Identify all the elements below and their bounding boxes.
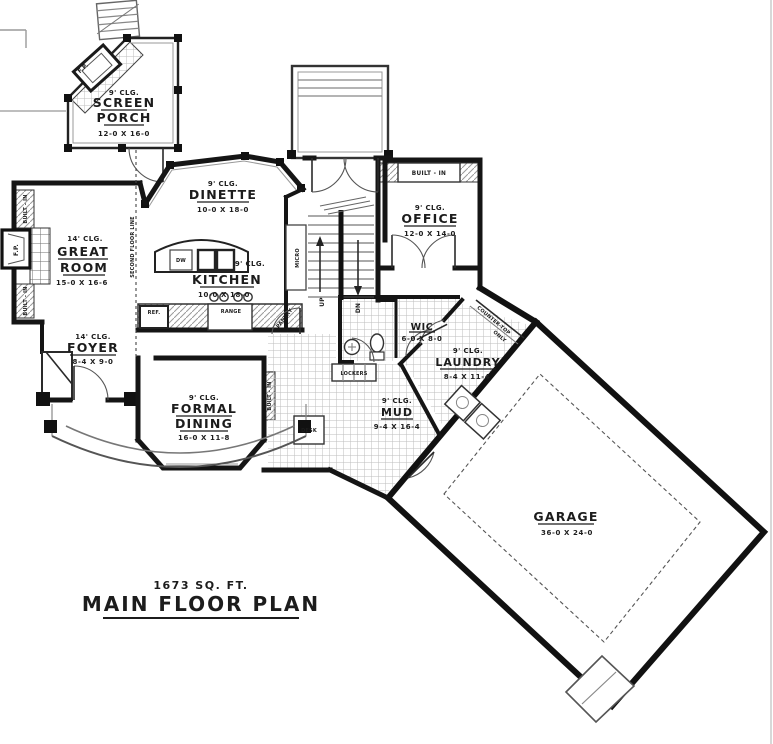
svg-text:KITCHEN: KITCHEN — [192, 272, 262, 287]
plan-title: MAIN FLOOR PLAN — [82, 592, 320, 616]
svg-text:10-0 X 18-0: 10-0 X 18-0 — [198, 291, 250, 299]
porch-door-arc — [129, 148, 163, 182]
range-cabinet — [208, 304, 252, 330]
svg-text:36-0 X 24-0: 36-0 X 24-0 — [541, 529, 593, 537]
stair-rail-hatch — [320, 197, 374, 214]
title-block: 1673 SQ. FT. MAIN FLOOR PLAN — [82, 579, 320, 618]
built-in-label-dining: BUILT - IN — [267, 381, 273, 410]
dinette-label: 9' CLG. DINETTE 10-0 X 18-0 — [189, 180, 257, 214]
great-room-fireplace-label: F.P. — [14, 244, 20, 256]
up-arrowhead — [316, 236, 324, 246]
svg-text:GARAGE: GARAGE — [533, 509, 598, 524]
svg-text:9' CLG.: 9' CLG. — [453, 347, 483, 355]
svg-text:DINING: DINING — [175, 416, 233, 431]
svg-text:16-0 X 11-8: 16-0 X 11-8 — [178, 434, 230, 442]
lockers-label: LOCKERS — [340, 371, 367, 377]
front-door-arc — [74, 366, 108, 400]
svg-text:MUD: MUD — [381, 406, 413, 419]
svg-text:LAUNDRY: LAUNDRY — [435, 356, 500, 369]
svg-text:ROOM: ROOM — [60, 260, 108, 275]
svg-text:FORMAL: FORMAL — [171, 401, 237, 416]
svg-text:14' CLG.: 14' CLG. — [67, 235, 103, 243]
deck — [287, 66, 393, 159]
floor-plan-drawing: 9' CLG. SCREEN PORCH 12-0 X 16-0 9' CLG.… — [0, 0, 773, 744]
desk-label: DESK — [301, 428, 318, 434]
office-label: 9' CLG. OFFICE 12-0 X 14-0 — [401, 204, 458, 238]
sink-basin-left — [198, 250, 215, 270]
foyer-label: 14' CLG. FOYER 8-4 X 9-0 — [67, 333, 119, 366]
svg-text:DINETTE: DINETTE — [189, 187, 257, 202]
svg-text:OFFICE: OFFICE — [401, 211, 458, 226]
built-in-label-lower: BUILT - IN — [23, 286, 29, 315]
sink-basin-right — [217, 250, 234, 270]
svg-text:SCREEN: SCREEN — [93, 95, 156, 110]
svg-text:GREAT: GREAT — [57, 244, 109, 259]
floor-plan-page: 9' CLG. SCREEN PORCH 12-0 X 16-0 9' CLG.… — [0, 0, 773, 744]
svg-text:6-0 X 8-0: 6-0 X 8-0 — [402, 335, 443, 343]
svg-text:12-0 X 16-0: 12-0 X 16-0 — [98, 130, 150, 138]
dw-label: DW — [176, 258, 186, 264]
svg-text:15-0 X 16-6: 15-0 X 16-6 — [56, 279, 108, 287]
ref-label: REF. — [148, 310, 161, 316]
svg-text:9-4 X 16-4: 9-4 X 16-4 — [374, 423, 420, 431]
svg-text:9' CLG.: 9' CLG. — [235, 260, 265, 268]
svg-text:10-0 X 18-0: 10-0 X 18-0 — [197, 206, 249, 214]
toilet — [371, 334, 384, 352]
micro-label: MICRO — [295, 248, 301, 268]
svg-text:12-0 X 14-0: 12-0 X 14-0 — [404, 230, 456, 238]
built-in-label-upper: BUILT - IN — [23, 194, 29, 223]
svg-text:8-4 X 9-0: 8-4 X 9-0 — [73, 358, 114, 366]
up-label: UP — [320, 297, 326, 307]
staircase — [286, 158, 378, 300]
garage-label: GARAGE 36-0 X 24-0 — [533, 509, 598, 537]
built-in-label-office: BUILT - IN — [412, 171, 446, 177]
svg-text:8-4 X 11-4: 8-4 X 11-4 — [444, 373, 490, 381]
great-room-label: 14' CLG. GREAT ROOM 15-0 X 16-6 — [56, 235, 109, 287]
svg-text:PORCH: PORCH — [96, 110, 151, 125]
formal-dining-label: 9' CLG. FORMAL DINING 16-0 X 11-8 — [171, 394, 237, 442]
second-floor-line-label: SECOND FLOOR LINE — [130, 216, 136, 278]
range-label: RANGE — [221, 309, 242, 315]
down-arrowhead — [354, 286, 362, 296]
area-label: 1673 SQ. FT. — [153, 579, 248, 592]
screen-porch-label: 9' CLG. SCREEN PORCH 12-0 X 16-0 — [93, 89, 156, 138]
down-label: DN — [356, 303, 362, 313]
porch-exterior-stairs — [95, 0, 142, 40]
svg-text:FOYER: FOYER — [67, 340, 119, 355]
svg-text:9' CLG.: 9' CLG. — [382, 397, 412, 405]
